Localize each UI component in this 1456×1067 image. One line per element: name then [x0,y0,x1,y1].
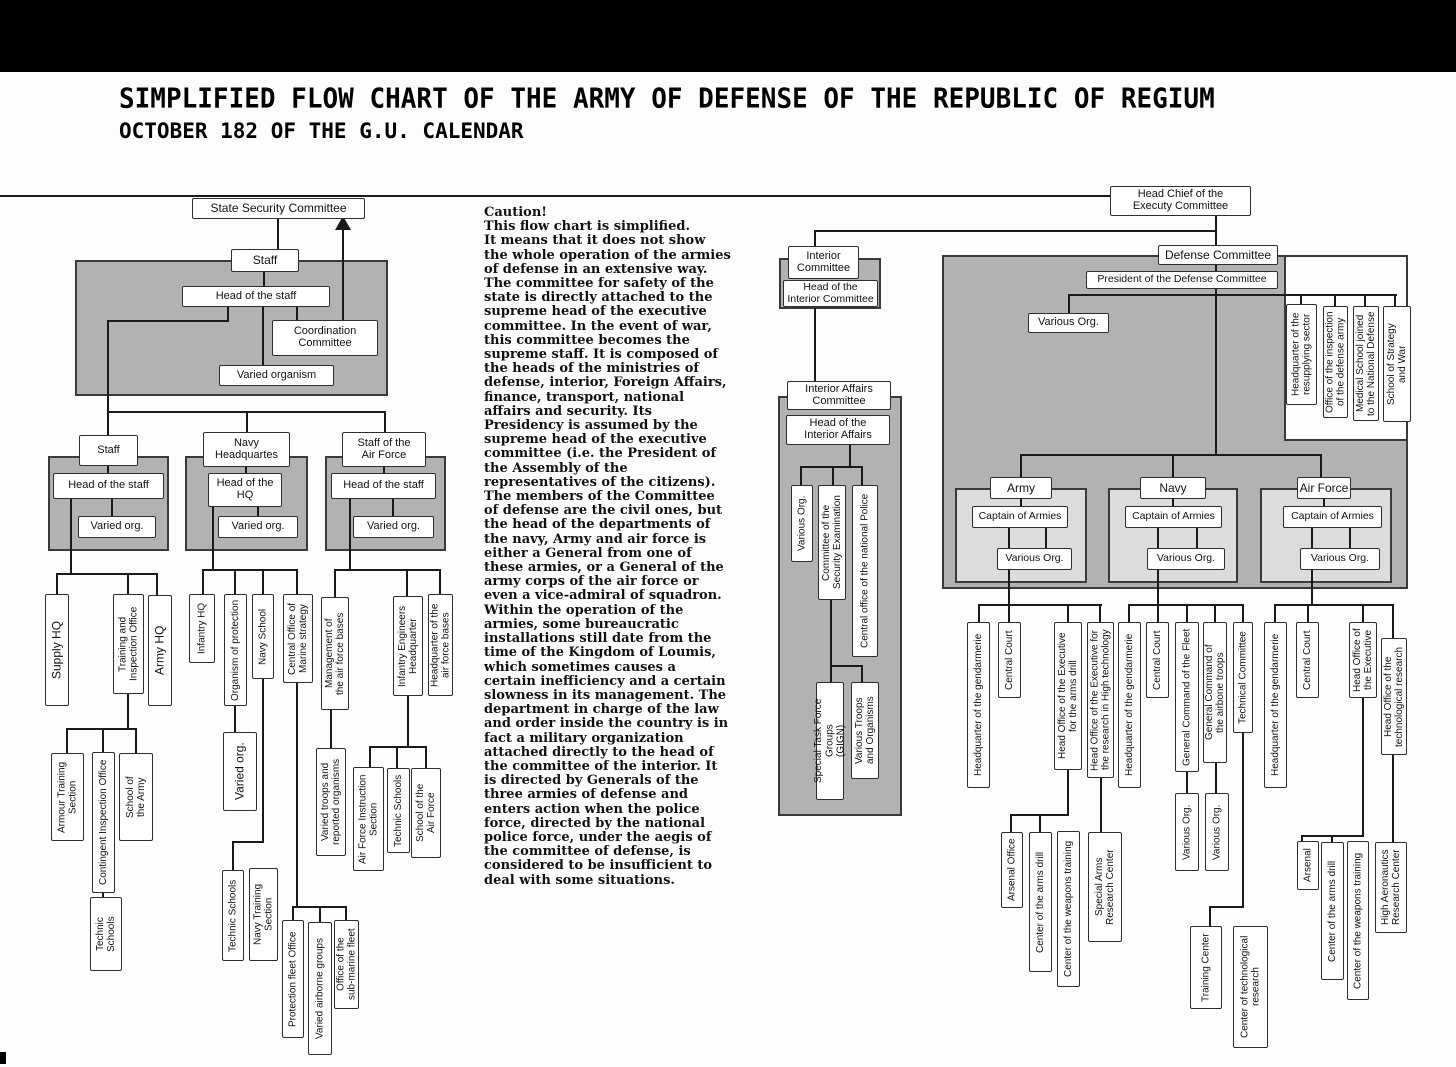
node-center-arms-drill-army: Center of the arms drill [1029,832,1052,972]
node-special-arms-research-center: Special Arms Research Center [1088,832,1122,942]
connector-line [1128,604,1130,623]
node-staff-left: Staff [79,435,138,466]
connector-line [319,906,321,923]
node-air-force: Air Force [1297,477,1351,499]
connector-line [815,230,1217,232]
connector-line [246,411,248,433]
node-general-command-airborne: General Command of the airbone troops [1203,622,1227,763]
connector-line [0,195,1112,197]
connector-line [396,746,398,769]
node-hq-resupplying-sector: Headquarter of the resupplying sector [1286,304,1317,405]
node-training-center: Training Center [1190,926,1222,1009]
connector-line [814,308,816,382]
node-various-org-defense: Various Org. [1028,313,1109,333]
connector-line [1039,814,1041,833]
connector-line [1157,527,1159,549]
node-head-office-tech-research: Head Office of the technological researc… [1381,638,1407,755]
connector-line [135,728,137,754]
node-head-of-staff-left: Head of the staff [53,473,164,499]
page-title: SIMPLIFIED FLOW CHART OF THE ARMY OF DEF… [119,83,1319,115]
connector-line [1392,754,1394,843]
node-contingent-inspection-office: Contingent Inspection Office [92,752,115,893]
connector-line [107,320,109,413]
node-supply-hq: Supply HQ [45,594,69,706]
node-central-court-army: Central Court [998,622,1021,698]
flow-chart-page: SIMPLIFIED FLOW CHART OF THE ARMY OF DEF… [0,0,1456,1067]
connector-line [296,569,298,595]
node-center-weapons-training-army: Center of the weapons training [1057,831,1080,987]
node-training-inspection-office: Training and Inspection Office [113,594,144,694]
node-central-court-navy: Central Court [1146,622,1169,698]
node-varied-troops-organisms: Varied troops and reported organisms [316,748,346,856]
node-school-strategy-war: School of Strategy and War [1383,306,1411,422]
connector-line [800,466,802,486]
connector-line [978,604,980,623]
connector-line [384,411,386,433]
node-committee-security-examination: Committee of the Security Examination [818,485,846,600]
node-head-of-hq: Head of the HQ [208,473,282,507]
connector-line [127,573,129,595]
node-protection-fleet-office: Protection fleet Office [282,920,304,1038]
connector-line [1215,215,1217,246]
connector-line [1157,604,1159,623]
connector-line [202,569,298,571]
node-army: Army [990,477,1052,499]
node-head-office-research-high-tech: Head Office of the Executive for the res… [1087,622,1114,778]
node-various-troops-organisms-interior: Various Troops and Organisms [851,682,879,779]
connector-line [349,498,351,571]
connector-line [1242,732,1244,908]
node-armour-training-section: Armour Training Section [51,753,84,841]
node-arsenal-office: Arsenal Office [1001,832,1023,908]
connector-line [1010,814,1012,833]
node-gendarmerie-af: Headquarter of the gendarmerie [1264,622,1287,788]
node-president-defense-committee: President of the Defense Committee [1086,271,1278,289]
node-navy-training-section: Navy Training Section [249,868,278,961]
node-staff-main: Staff [231,249,299,272]
node-head-office-executive-af: Head Office of the Executive [1349,622,1377,698]
node-technic-schools-navy: Technic Schools [222,870,244,961]
connector-line [1349,527,1351,549]
node-varied-org-af: Varied org. [353,516,434,538]
node-various-org-fleet: Various Org. [1175,793,1199,871]
node-high-aeronautics-research-center: High Aeronautics Research Center [1375,842,1407,933]
connector-line [407,695,409,748]
connector-line [1274,604,1394,606]
node-interior-affairs-committee: Interior Affairs Committee [787,381,891,410]
node-navy-headquartes: Navy Headquartes [203,432,290,467]
connector-line [296,682,298,908]
connector-line [1008,527,1010,549]
node-center-arms-drill-af: Center of the arms drill [1321,842,1344,980]
connector-line [330,709,332,749]
node-air-force-instruction-section: Air Force Instruction Section [353,767,384,871]
connector-line [102,728,104,753]
connector-line [1307,604,1309,623]
node-various-org-af-branch: Various Org. [1300,548,1380,570]
node-office-inspection-defense-army: Office of the inspection of the defense … [1323,306,1348,418]
node-varied-org-mid: Varied org. [218,516,298,538]
connector-line [277,217,279,250]
node-head-of-staff-af: Head of the staff [331,473,436,499]
connector-line [1008,604,1010,623]
connector-line [1362,697,1364,837]
connector-line [263,270,265,287]
node-varied-airborne-groups: Varied airborne groups [308,922,332,1055]
node-various-org-interior: Various Org. [791,485,813,562]
node-varied-org-left: Varied org. [78,516,156,538]
connector-line [830,665,863,667]
connector-line [70,498,72,575]
connector-line [1068,294,1070,314]
node-general-command-fleet: General Command of the Fleet [1175,622,1199,772]
connector-line [1215,288,1217,456]
connector-line [1274,604,1276,623]
node-gendarmerie-navy: Headquarter of the gendarmerie [1118,622,1141,788]
node-navy-school: Navy School [252,594,274,679]
node-varied-org-protection: Varied org. [223,732,257,811]
connector-line [1020,454,1022,478]
connector-line [1362,604,1364,623]
connector-line [369,746,427,748]
node-head-interior-affairs: Head of the Interior Affairs [786,415,890,445]
connector-line [107,411,109,436]
connector-line [262,569,264,595]
connector-line [1157,569,1159,605]
connector-line [296,305,298,321]
connector-line [127,693,129,729]
node-central-court-af: Central Court [1296,622,1319,698]
node-navy: Navy [1140,477,1206,499]
connector-line [978,604,1102,606]
connector-line [212,506,214,571]
connector-line [262,678,264,843]
connector-line [1209,906,1211,927]
node-organism-of-protection: Organism of protection [224,594,247,706]
caution-heading: Caution! [484,206,731,220]
connector-line [1196,527,1198,549]
connector-line [111,498,113,517]
connector-line [406,569,408,597]
node-school-of-the-air-force: School of the Air Force [411,768,441,858]
node-interior-committee: Interior Committee [788,246,859,279]
node-head-of-staff-main: Head of the staff [182,286,330,307]
connector-line [1172,454,1174,478]
connector-line [369,746,371,768]
node-army-hq: Army HQ [148,595,172,706]
node-central-office-national-police: Central office of the national Police [852,485,878,657]
node-headquarter-air-force-bases: Headquarter of the air force bases [428,594,453,696]
connector-line [334,569,441,571]
connector-line [262,305,264,366]
node-head-interior-committee: Head of the Interior Committee [783,280,878,307]
page-subtitle: OCTOBER 182 OF THE G.U. CALENDAR [119,119,819,143]
connector-line [1311,527,1313,549]
connector-line [1311,569,1313,605]
connector-line [1186,604,1188,623]
connector-line [1214,604,1216,623]
connector-line [345,906,347,921]
connector-line [814,230,816,247]
caution-note: Caution! This flow chart is simplified. … [484,206,731,888]
connector-line [1099,604,1101,623]
node-special-task-force-groups: Special Task Force Groups (GIGN) [816,682,844,800]
node-various-org-navy: Various Org. [1147,548,1225,570]
connector-line [1100,777,1102,833]
top-black-bar [0,0,1456,72]
connector-line [234,569,236,595]
page-edge-mark [0,1052,6,1064]
connector-line [1392,604,1394,639]
connector-line [439,569,441,595]
connector-line [334,569,336,598]
connector-line [232,841,234,871]
connector-line [849,444,851,468]
node-head-office-arms-drill: Head Office of the Executive for the arm… [1054,622,1082,770]
node-coordination-committee: Coordination Committee [272,320,378,356]
node-center-tech-research: Center of technological research [1233,926,1268,1048]
connector-line [232,841,264,843]
connector-line [1068,294,1397,296]
connector-line [1320,454,1322,478]
connector-line [292,906,294,921]
connector-line [56,573,58,595]
node-infantry-engineers-hq: Infantry Engineers Headquarter [393,596,423,696]
connector-line [861,665,863,683]
connector-line [66,728,68,754]
node-infantry-hq: Infantry HQ [189,594,215,663]
connector-line [1215,762,1217,794]
node-state-security-committee: State Security Committee [192,198,365,219]
connector-line [1020,454,1322,456]
node-medical-school-national-defense: Medical School joined to the National De… [1353,306,1379,421]
node-office-submarine-fleet: Office of the sub-marine fleet [334,920,359,1009]
node-varied-organism: Varied organism [219,365,334,386]
connector-line [1186,771,1188,794]
node-central-office-marine-strategy: Central Office of Marine strategy [283,594,313,683]
node-technical-committee: Technical Committee [1233,622,1253,733]
connector-line [1242,604,1244,623]
connector-line [342,226,344,321]
connector-line [202,569,204,595]
node-defense-committee: Defense Committee [1158,245,1278,265]
node-school-of-the-army: School of the Army [119,753,153,841]
connector-line [832,466,834,486]
connector-line [56,573,158,575]
node-various-org-army: Various Org. [997,548,1072,570]
node-arsenal-af: Arsenal [1297,841,1319,890]
connector-line [234,705,236,733]
node-various-org-airborne: Various Org. [1205,793,1229,871]
node-captain-armies-army: Captain of Armies [972,506,1068,528]
node-technic-schools-af: Technic Schools [387,768,410,853]
node-center-weapons-training-af: Center of the weapons training [1347,841,1369,1000]
caution-body: This flow chart is simplified. It means … [484,220,731,888]
connector-line [392,498,394,517]
node-captain-armies-navy: Captain of Armies [1125,506,1222,528]
connector-line [1045,527,1047,549]
node-technic-schools-army: Technic Schools [90,897,122,971]
node-staff-air-force: Staff of the Air Force [342,432,426,467]
connector-line [1067,604,1069,623]
node-head-chief-executy-committee: Head Chief of the Executy Committee [1110,186,1251,216]
connector-line [107,320,229,322]
connector-line [156,573,158,596]
connector-line [425,746,427,769]
connector-line [1209,906,1244,908]
connector-line [1067,769,1069,816]
connector-line [830,599,832,683]
connector-line [1008,569,1010,605]
connector-line [861,466,863,486]
node-management-air-force-bases: Management of the air force bases [321,597,349,710]
node-gendarmerie-army: Headquarter of the gendarmerie [967,622,990,788]
node-captain-armies-af: Captain of Armies [1283,506,1382,528]
